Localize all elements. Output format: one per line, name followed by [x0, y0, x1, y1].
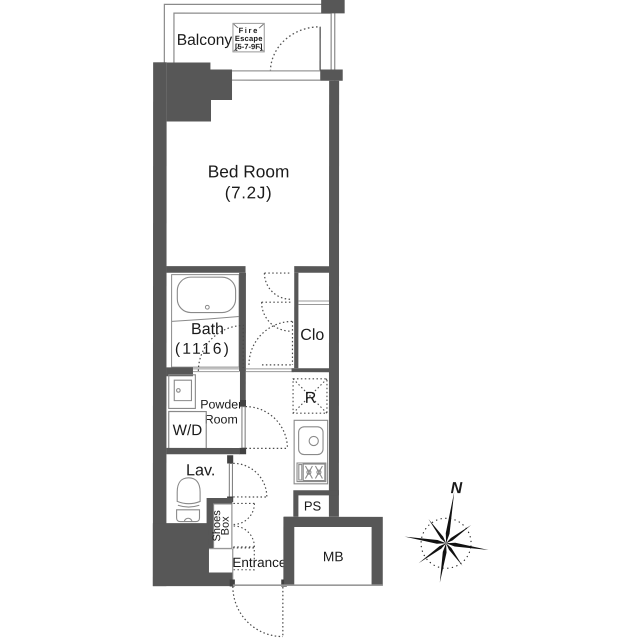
svg-text:Balcony: Balcony — [177, 32, 233, 49]
svg-text:Box: Box — [220, 516, 232, 535]
svg-text:Clo: Clo — [300, 327, 324, 344]
svg-text:N: N — [451, 480, 463, 497]
svg-text:W/D: W/D — [173, 422, 203, 439]
svg-text:(1116): (1116) — [175, 341, 231, 358]
svg-text:PS: PS — [304, 498, 322, 513]
svg-text:Lav.: Lav. — [186, 461, 215, 479]
svg-text:MB: MB — [323, 549, 344, 564]
svg-text:Room: Room — [205, 413, 238, 427]
svg-text:Powder: Powder — [200, 398, 242, 412]
svg-text:(7.2J): (7.2J) — [225, 183, 273, 202]
svg-text:[5-7-9F]: [5-7-9F] — [235, 42, 263, 51]
svg-text:Entrance: Entrance — [232, 555, 286, 570]
svg-text:Bath: Bath — [191, 321, 224, 338]
svg-text:R: R — [305, 390, 317, 407]
svg-text:Bed Room: Bed Room — [208, 161, 290, 181]
